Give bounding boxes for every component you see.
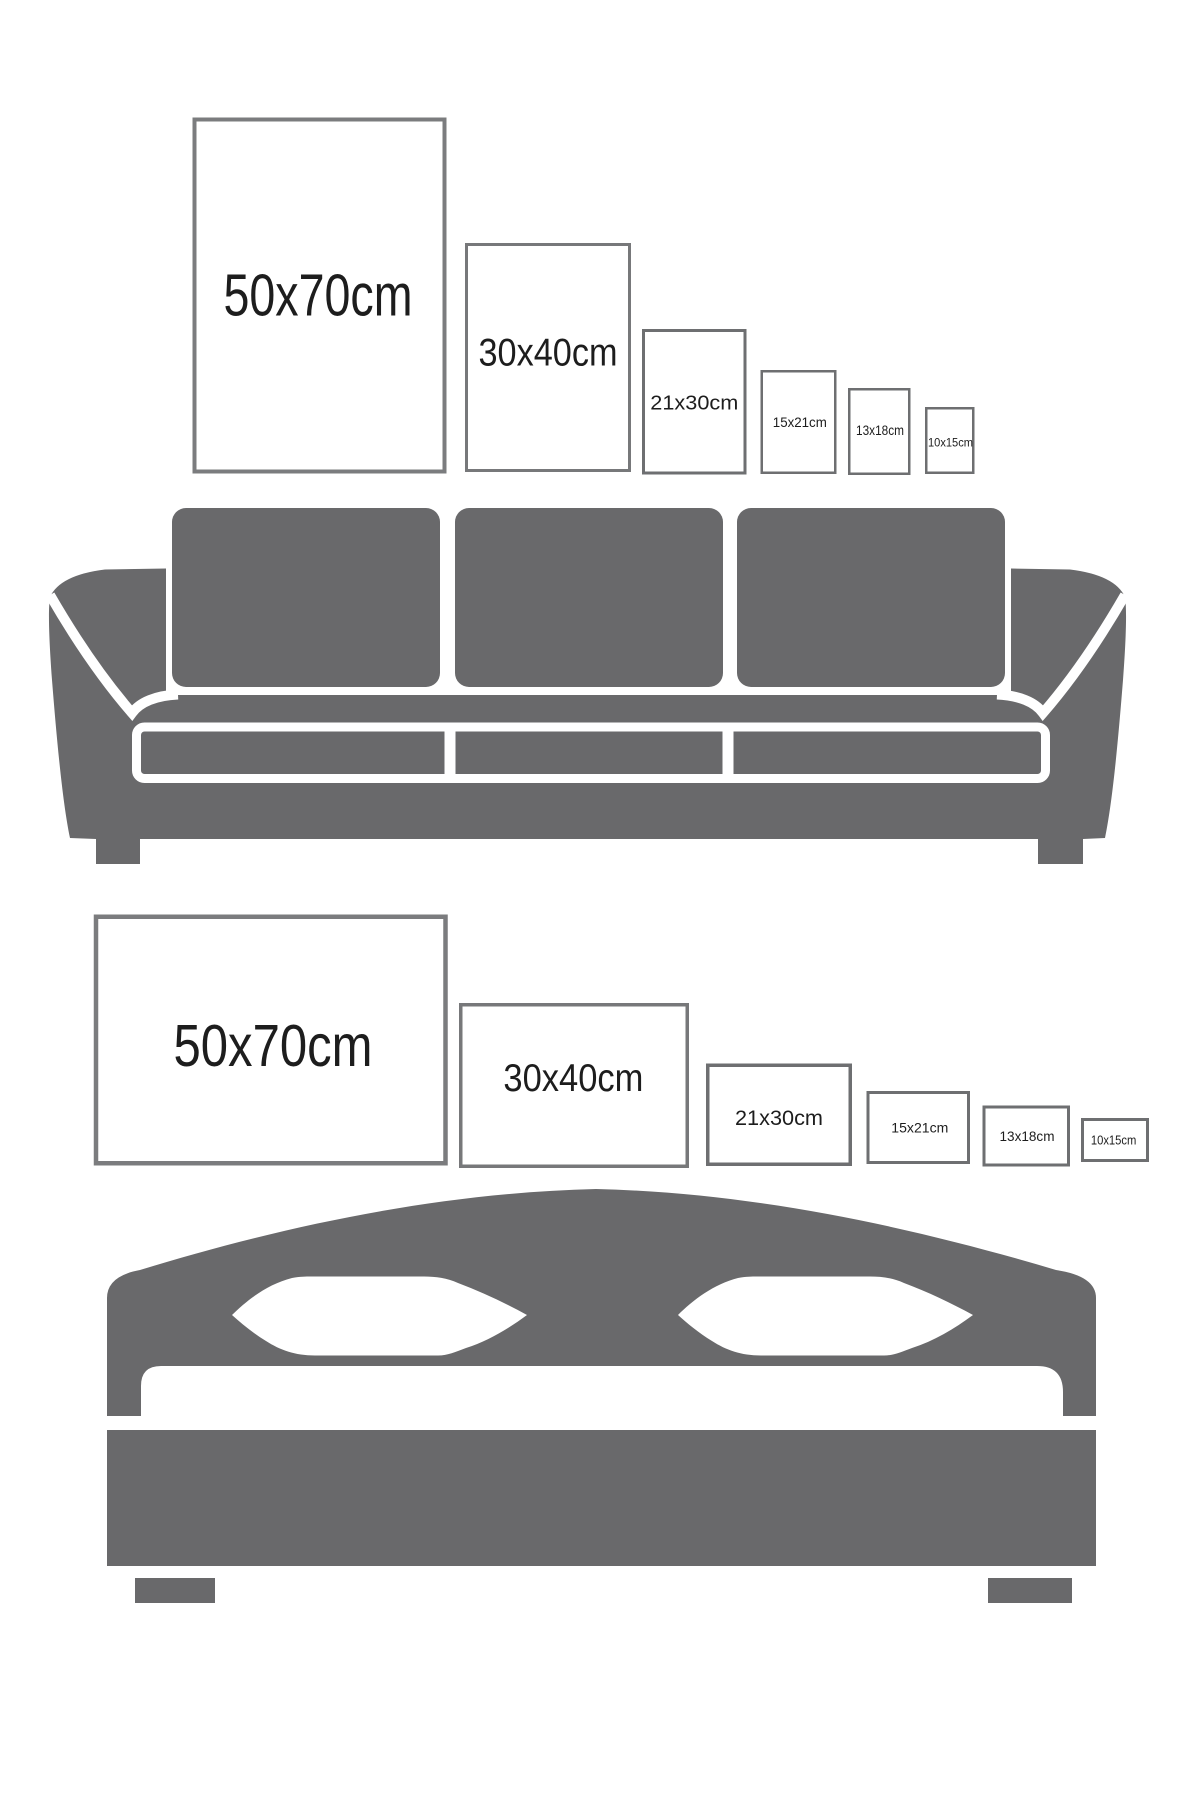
svg-text:21x30cm: 21x30cm bbox=[650, 392, 738, 414]
svg-text:10x15cm: 10x15cm bbox=[1091, 1134, 1137, 1148]
svg-text:50x70cm: 50x70cm bbox=[224, 263, 413, 329]
svg-text:21x30cm: 21x30cm bbox=[735, 1107, 823, 1130]
svg-text:30x40cm: 30x40cm bbox=[479, 331, 618, 374]
svg-text:13x18cm: 13x18cm bbox=[1000, 1129, 1055, 1144]
svg-text:15x21cm: 15x21cm bbox=[891, 1120, 948, 1135]
svg-text:13x18cm: 13x18cm bbox=[856, 423, 904, 438]
svg-text:50x70cm: 50x70cm bbox=[174, 1013, 373, 1079]
svg-text:15x21cm: 15x21cm bbox=[773, 415, 827, 430]
svg-text:10x15cm: 10x15cm bbox=[928, 436, 973, 450]
svg-text:30x40cm: 30x40cm bbox=[503, 1057, 643, 1100]
